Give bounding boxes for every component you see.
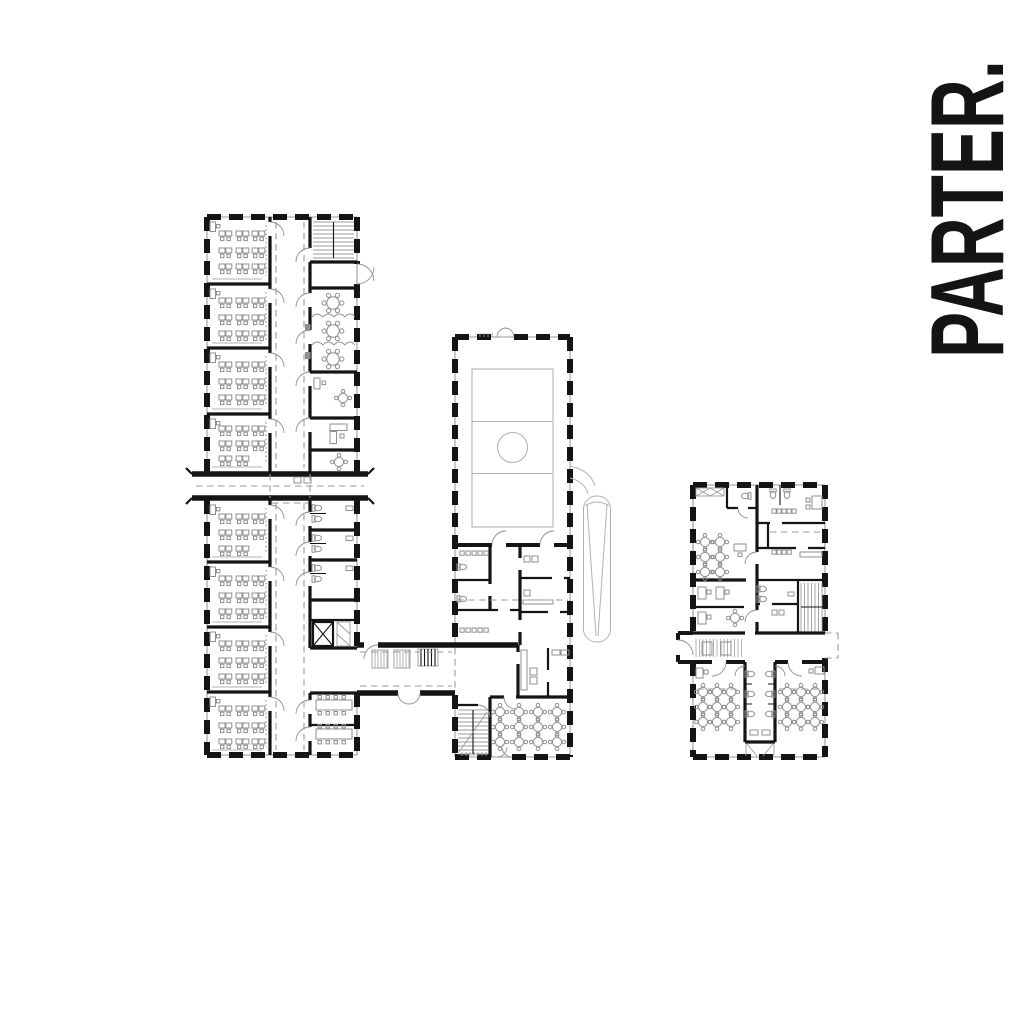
sports-court: [472, 369, 553, 527]
classroom-dividers: [207, 284, 270, 692]
kitchen: [518, 645, 569, 697]
floor-plan-drawing: PARTER.: [0, 0, 1024, 1024]
ground-link-corridor: [357, 645, 518, 704]
long-table-rooms: [316, 696, 352, 744]
gym-canteen-building: [455, 328, 570, 757]
side-entrance-door: [357, 264, 374, 284]
staircase-north: [313, 222, 354, 258]
elevator: [313, 622, 350, 646]
wc-block: [310, 505, 353, 582]
meeting-rooms: [305, 293, 355, 368]
entrance-vestibule: [678, 633, 742, 662]
future-link-stub: [825, 633, 838, 658]
classroom-door-arcs: [270, 222, 284, 711]
classroom-desks: [210, 222, 265, 749]
playroom-south-west: [694, 668, 739, 731]
floor-plan-page: PARTER.: [0, 0, 1024, 1024]
dining-hall: [490, 697, 570, 757]
playroom-south-east: [778, 667, 824, 731]
playroom-north: [696, 488, 751, 581]
changing-rooms: [455, 545, 570, 645]
staircase-south: [455, 705, 490, 756]
admin-offices: [314, 378, 352, 471]
link-bridge: [186, 468, 374, 504]
floor-label: PARTER.: [910, 60, 1024, 358]
exterior-slide: [570, 466, 611, 642]
kindergarten-building: [678, 485, 838, 757]
exterior-walls: [693, 485, 825, 757]
staircase-east: [801, 583, 823, 631]
